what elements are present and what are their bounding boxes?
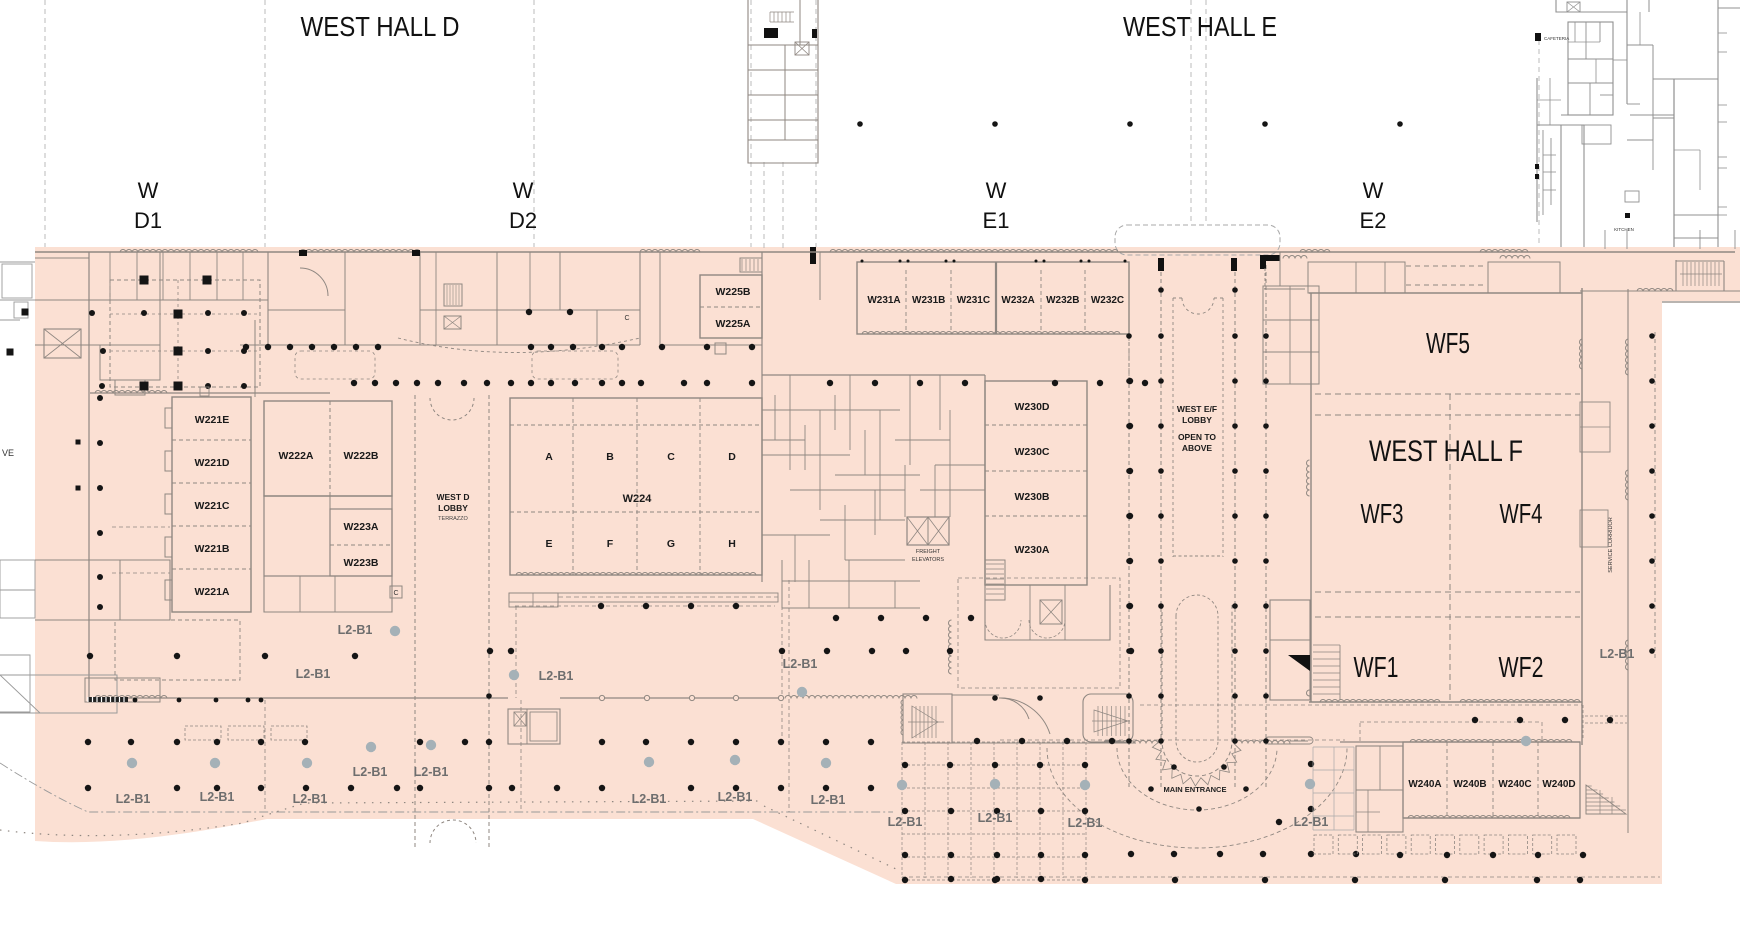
svg-text:W221C: W221C bbox=[194, 500, 229, 512]
svg-text:E: E bbox=[545, 538, 552, 550]
svg-text:W221D: W221D bbox=[194, 457, 229, 469]
svg-text:E2: E2 bbox=[1360, 208, 1387, 233]
svg-text:L2-B1: L2-B1 bbox=[1068, 816, 1103, 830]
svg-text:C: C bbox=[624, 315, 629, 322]
svg-text:KITCHEN: KITCHEN bbox=[1614, 227, 1634, 232]
svg-text:W231A: W231A bbox=[867, 295, 900, 306]
svg-text:C: C bbox=[393, 590, 398, 597]
svg-text:L2-B1: L2-B1 bbox=[414, 765, 449, 779]
svg-text:ELEVATORS: ELEVATORS bbox=[912, 557, 944, 563]
svg-text:W: W bbox=[138, 178, 159, 203]
svg-text:W225A: W225A bbox=[715, 318, 750, 330]
svg-text:L2-B1: L2-B1 bbox=[116, 792, 151, 806]
svg-text:W223B: W223B bbox=[343, 557, 378, 569]
svg-text:WEST HALL F: WEST HALL F bbox=[1369, 435, 1523, 468]
svg-text:C: C bbox=[667, 451, 675, 463]
svg-text:L2-B1: L2-B1 bbox=[296, 667, 331, 681]
svg-text:W223A: W223A bbox=[343, 521, 378, 533]
svg-text:F: F bbox=[607, 538, 614, 550]
svg-text:FREIGHT: FREIGHT bbox=[916, 549, 941, 555]
svg-text:L2-B1: L2-B1 bbox=[338, 623, 373, 637]
svg-text:H: H bbox=[728, 538, 736, 550]
svg-text:W240A: W240A bbox=[1408, 779, 1441, 790]
svg-text:LOBBY: LOBBY bbox=[438, 503, 468, 513]
svg-text:L2-B1: L2-B1 bbox=[783, 657, 818, 671]
svg-text:W230B: W230B bbox=[1014, 491, 1049, 503]
svg-text:L2-B1: L2-B1 bbox=[200, 790, 235, 804]
svg-text:E1: E1 bbox=[983, 208, 1010, 233]
svg-text:B: B bbox=[606, 451, 614, 463]
svg-text:W225B: W225B bbox=[715, 286, 750, 298]
svg-text:W230D: W230D bbox=[1014, 401, 1049, 413]
svg-text:W232B: W232B bbox=[1046, 295, 1079, 306]
svg-text:W222B: W222B bbox=[343, 450, 378, 462]
svg-text:D: D bbox=[728, 451, 736, 463]
svg-text:CAFETERIA: CAFETERIA bbox=[1544, 36, 1569, 41]
svg-text:G: G bbox=[667, 538, 675, 550]
svg-text:W221B: W221B bbox=[194, 543, 229, 555]
svg-text:MAIN ENTRANCE: MAIN ENTRANCE bbox=[1164, 785, 1227, 794]
svg-text:W230A: W230A bbox=[1014, 544, 1049, 556]
svg-text:WF4: WF4 bbox=[1500, 498, 1543, 529]
svg-text:VE: VE bbox=[2, 448, 14, 458]
svg-text:W232C: W232C bbox=[1091, 295, 1124, 306]
svg-text:WEST HALL E: WEST HALL E bbox=[1123, 11, 1277, 42]
svg-text:W221E: W221E bbox=[195, 414, 229, 426]
svg-text:L2-B1: L2-B1 bbox=[888, 815, 923, 829]
svg-text:W240C: W240C bbox=[1498, 779, 1531, 790]
svg-text:W240D: W240D bbox=[1542, 779, 1575, 790]
svg-text:A: A bbox=[545, 451, 553, 463]
svg-text:L2-B1: L2-B1 bbox=[1600, 647, 1635, 661]
svg-text:L2-B1: L2-B1 bbox=[539, 669, 574, 683]
svg-text:W221A: W221A bbox=[194, 586, 229, 598]
svg-text:L2-B1: L2-B1 bbox=[632, 792, 667, 806]
svg-text:W232A: W232A bbox=[1001, 295, 1034, 306]
svg-text:W240B: W240B bbox=[1453, 779, 1486, 790]
svg-text:L2-B1: L2-B1 bbox=[718, 790, 753, 804]
svg-text:W230C: W230C bbox=[1014, 446, 1049, 458]
svg-text:WF3: WF3 bbox=[1361, 498, 1404, 529]
svg-text:L2-B1: L2-B1 bbox=[1294, 815, 1329, 829]
svg-text:WF2: WF2 bbox=[1499, 652, 1544, 684]
svg-text:W: W bbox=[1363, 178, 1384, 203]
svg-text:LOBBY: LOBBY bbox=[1182, 415, 1212, 425]
svg-text:WEST D: WEST D bbox=[436, 492, 469, 502]
svg-text:OPEN TO: OPEN TO bbox=[1178, 432, 1216, 442]
svg-text:WF5: WF5 bbox=[1426, 328, 1470, 360]
svg-text:L2-B1: L2-B1 bbox=[811, 793, 846, 807]
svg-text:L2-B1: L2-B1 bbox=[293, 792, 328, 806]
svg-text:W: W bbox=[986, 178, 1007, 203]
svg-text:W222A: W222A bbox=[278, 450, 313, 462]
svg-text:D1: D1 bbox=[134, 208, 162, 233]
svg-text:D2: D2 bbox=[509, 208, 537, 233]
svg-text:WEST HALL D: WEST HALL D bbox=[301, 11, 460, 42]
svg-text:W231B: W231B bbox=[912, 295, 945, 306]
svg-text:L2-B1: L2-B1 bbox=[353, 765, 388, 779]
svg-text:L2-B1: L2-B1 bbox=[978, 811, 1013, 825]
svg-text:WEST E/F: WEST E/F bbox=[1177, 404, 1217, 414]
svg-text:TERRAZZO: TERRAZZO bbox=[438, 516, 468, 522]
svg-text:ABOVE: ABOVE bbox=[1182, 443, 1213, 453]
svg-text:W: W bbox=[513, 178, 534, 203]
svg-text:SERVICE CORRIDOR: SERVICE CORRIDOR bbox=[1608, 517, 1614, 573]
svg-text:WF1: WF1 bbox=[1354, 652, 1399, 684]
svg-text:W231C: W231C bbox=[957, 295, 990, 306]
